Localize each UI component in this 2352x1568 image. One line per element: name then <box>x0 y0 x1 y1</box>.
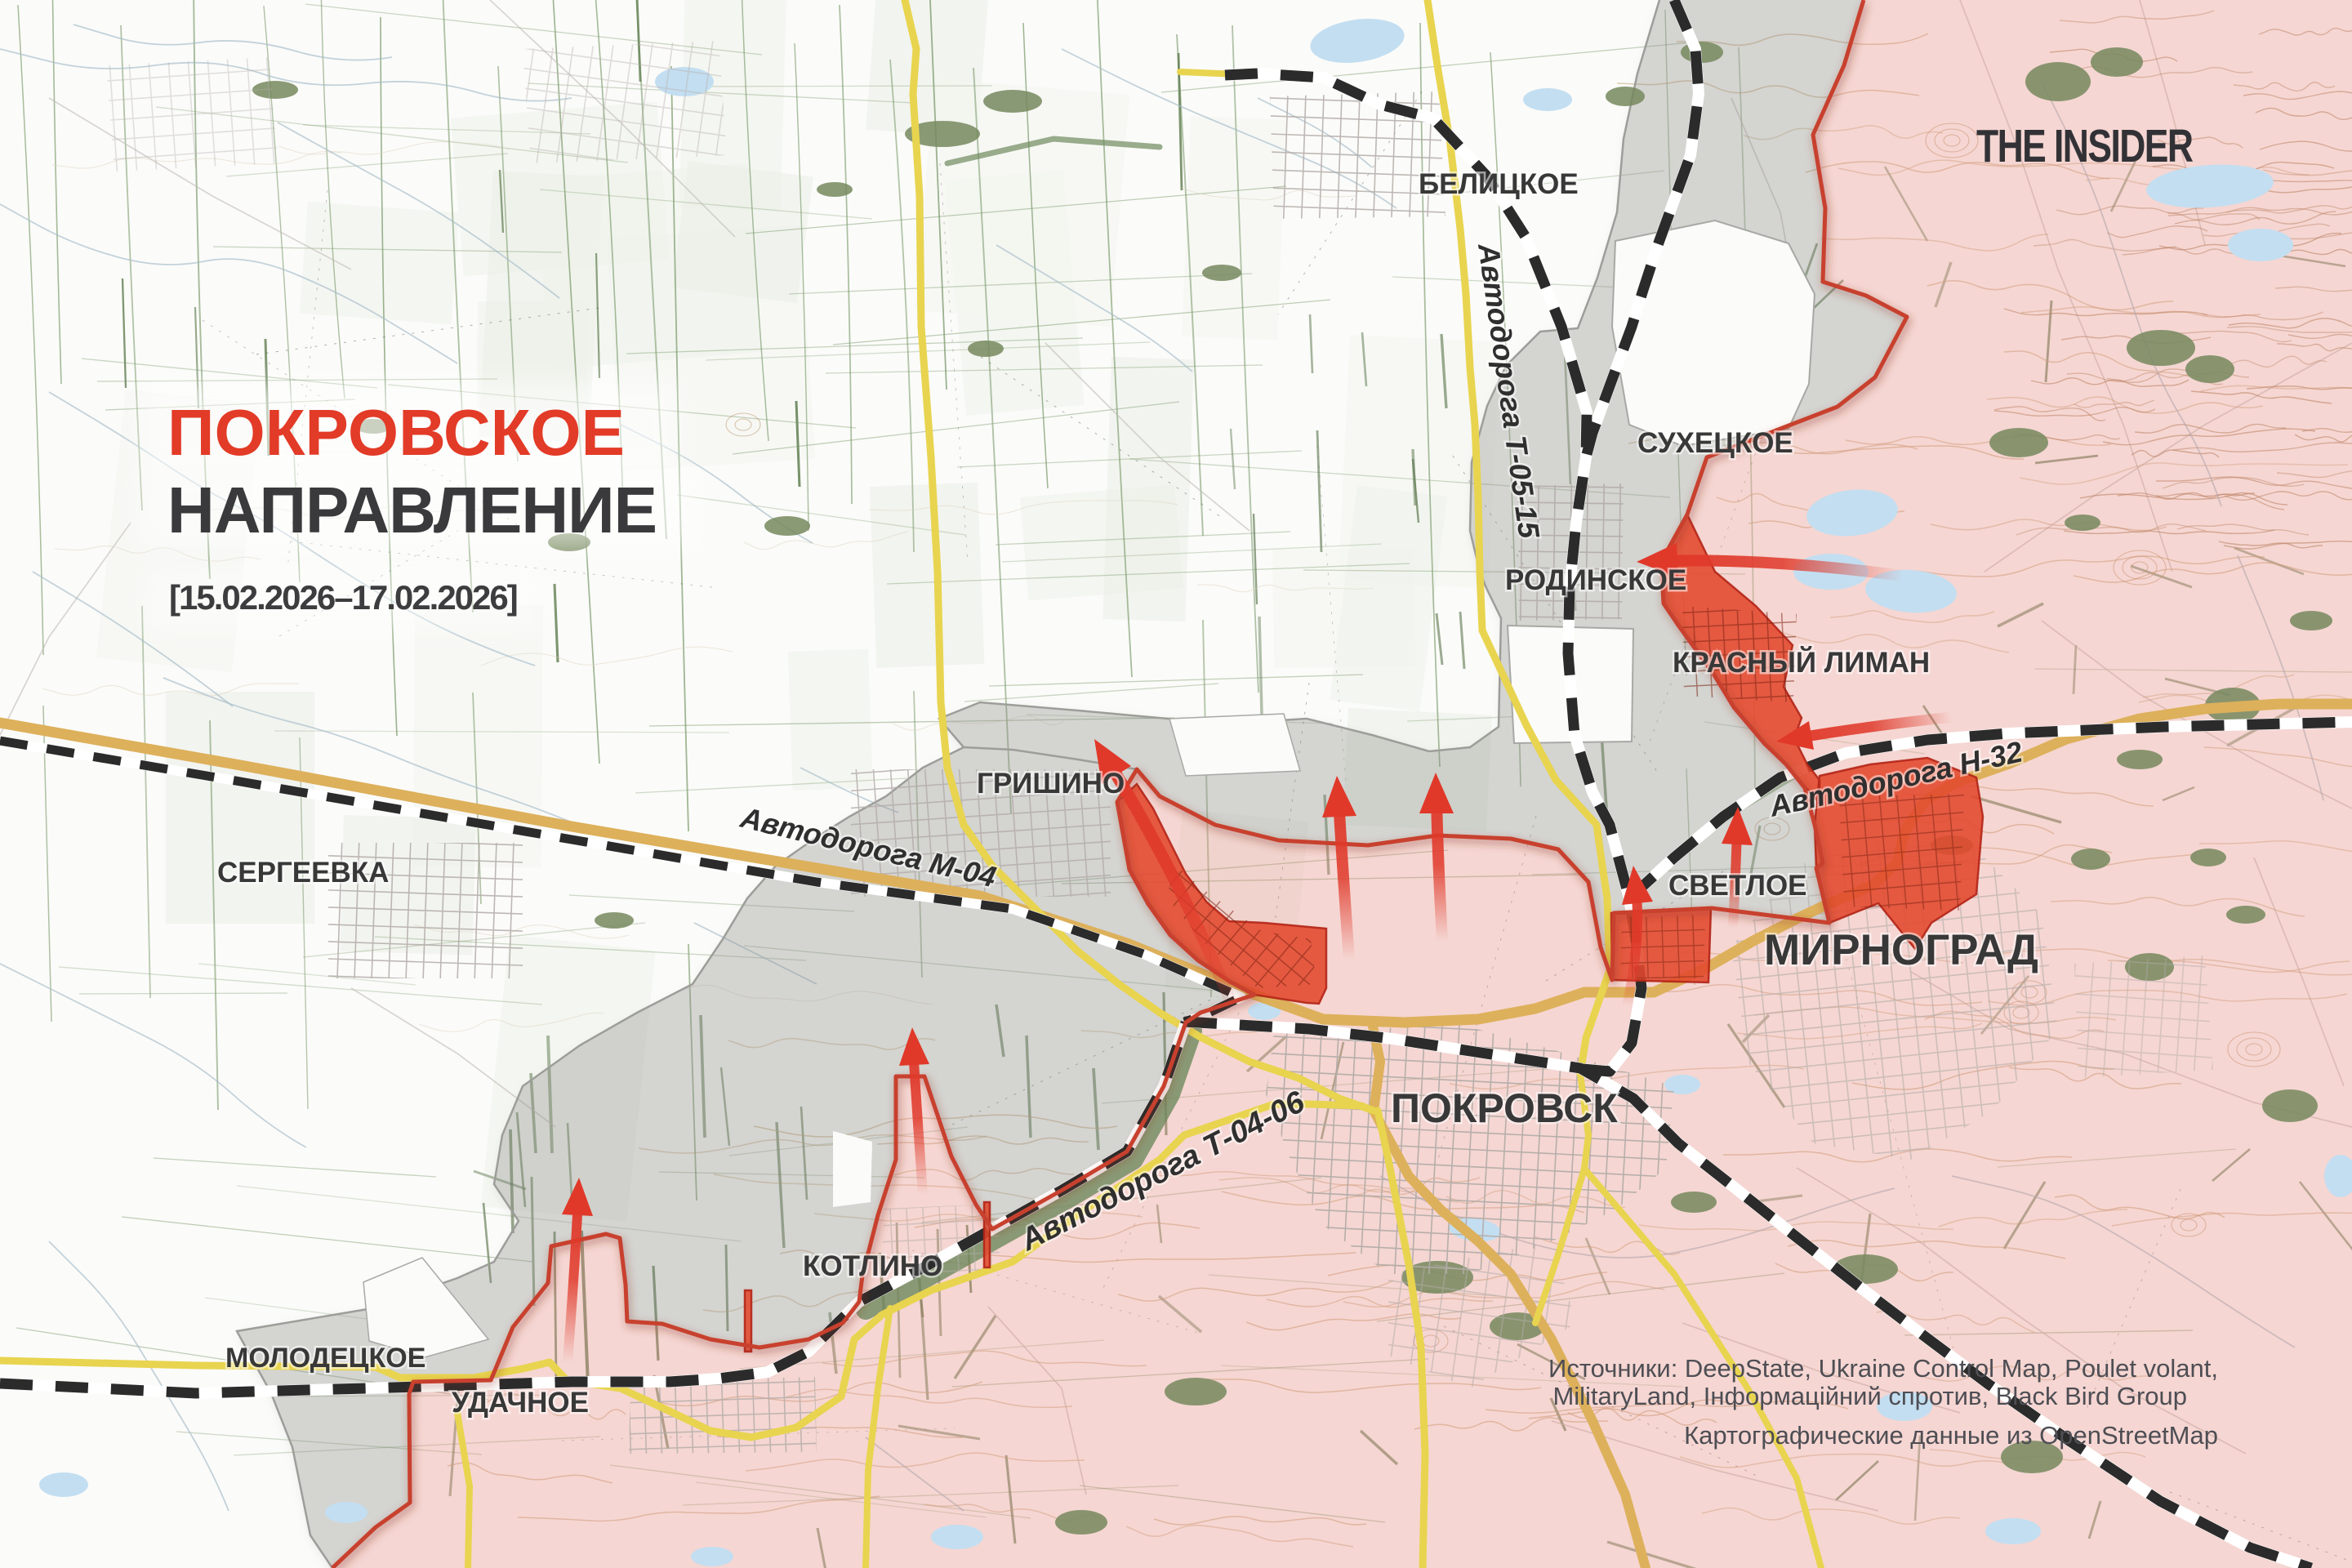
svg-text:КОТЛИНО: КОТЛИНО <box>803 1250 942 1282</box>
svg-text:THE INSIDER: THE INSIDER <box>1976 120 2193 172</box>
svg-text:ГРИШИНО: ГРИШИНО <box>977 768 1125 800</box>
svg-text:ПОКРОВСК: ПОКРОВСК <box>1391 1085 1618 1131</box>
svg-text:РОДИНСКОЕ: РОДИНСКОЕ <box>1505 564 1686 596</box>
svg-text:КРАСНЫЙ ЛИМАН: КРАСНЫЙ ЛИМАН <box>1673 646 1930 679</box>
svg-text:СЕРГЕЕВКА: СЕРГЕЕВКА <box>217 857 389 889</box>
svg-text:МОЛОДЕЦКОЕ: МОЛОДЕЦКОЕ <box>225 1343 425 1374</box>
svg-text:СУХЕЦКОЕ: СУХЕЦКОЕ <box>1637 427 1793 459</box>
svg-text:[15.02.2026–17.02.2026]: [15.02.2026–17.02.2026] <box>169 578 517 617</box>
svg-text:УДАЧНОЕ: УДАЧНОЕ <box>452 1387 589 1419</box>
svg-text:НАПРАВЛЕНИЕ: НАПРАВЛЕНИЕ <box>167 474 657 546</box>
svg-text:Источники: DeepState, Ukraine: Источники: DeepState, Ukraine Control Ma… <box>1548 1354 2218 1383</box>
svg-text:MilitaryLand, Інформаційний сп: MilitaryLand, Інформаційний спротив, Bla… <box>1552 1382 2187 1410</box>
svg-text:МИРНОГРАД: МИРНОГРАД <box>1764 926 2038 974</box>
svg-text:СВЕТЛОЕ: СВЕТЛОЕ <box>1668 870 1807 902</box>
svg-text:ПОКРОВСКОЕ: ПОКРОВСКОЕ <box>167 396 625 469</box>
svg-text:Картографические данные из Ope: Картографические данные из OpenStreetMap <box>1684 1421 2218 1450</box>
svg-text:БЕЛИЦКОЕ: БЕЛИЦКОЕ <box>1419 168 1579 200</box>
